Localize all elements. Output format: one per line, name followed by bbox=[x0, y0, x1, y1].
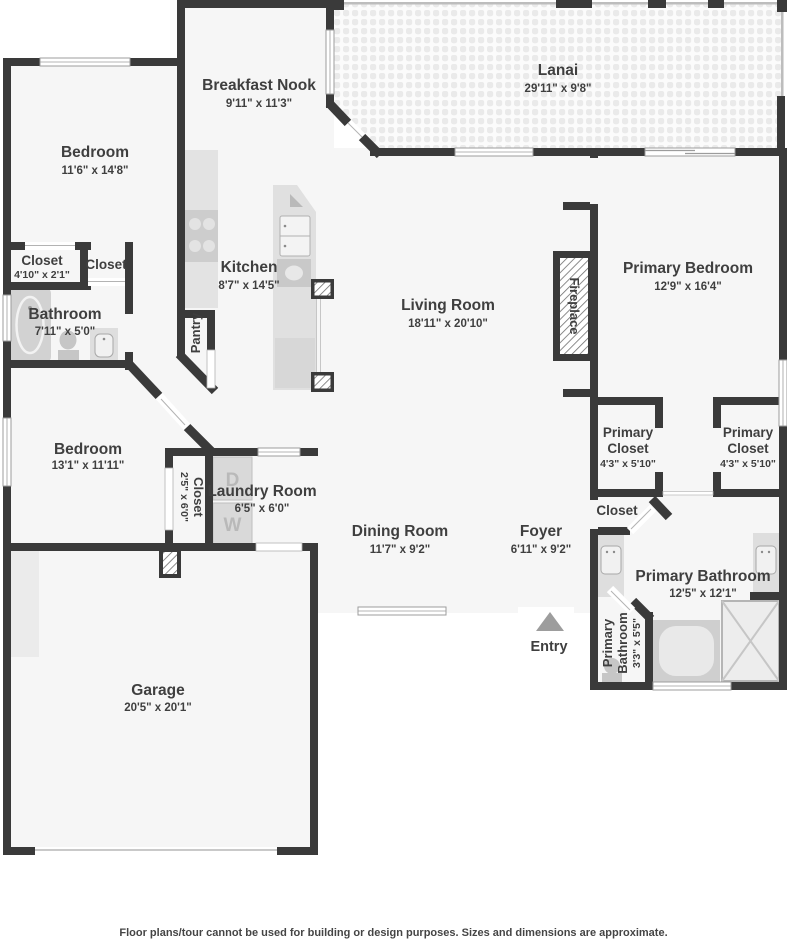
label-primary-closet-left-1: Primary bbox=[603, 425, 654, 440]
label-foyer-name: Foyer bbox=[520, 523, 562, 540]
label-hall-closet-name: Closet bbox=[596, 503, 638, 518]
kitchen-cabinet-fixture bbox=[277, 259, 311, 287]
label-closet-b-name: Closet bbox=[85, 257, 127, 272]
label-bedroom-mid-dims: 13'1" x 11'11" bbox=[52, 460, 125, 472]
label-primary-closet-right-1: Primary bbox=[723, 425, 774, 440]
label-fireplace-name: Fireplace bbox=[567, 277, 582, 334]
label-pantry-name: Pantry bbox=[188, 312, 203, 353]
label-primary-bathroom-dims: 12'5" x 12'1" bbox=[669, 588, 737, 600]
disclaimer-text: Floor plans/tour cannot be used for buil… bbox=[0, 927, 787, 939]
label-primary-closet-right-2: Closet bbox=[727, 441, 769, 456]
label-foyer-dims: 6'11" x 9'2" bbox=[511, 544, 572, 556]
label-primary-wc-dims: 3'3" x 5'5" bbox=[631, 618, 643, 668]
label-lanai-name: Lanai bbox=[538, 62, 578, 79]
label-closet-mid-dims: 2'5" x 6'0" bbox=[178, 472, 190, 522]
primary-vanity-left bbox=[598, 533, 624, 597]
slider-window bbox=[645, 148, 735, 156]
label-breakfast-nook-dims: 9'11" x 11'3" bbox=[226, 98, 292, 110]
label-bedroom-top-name: Bedroom bbox=[61, 144, 129, 161]
label-primary-closet-left-2: Closet bbox=[607, 441, 649, 456]
label-bedroom-mid-name: Bedroom bbox=[54, 441, 122, 458]
stove-fixture bbox=[185, 210, 218, 262]
label-laundry-dims: 6'5" x 6'0" bbox=[235, 503, 290, 515]
label-closet-mid-name: Closet bbox=[191, 477, 206, 517]
shower-fixture bbox=[722, 601, 779, 681]
label-garage-name: Garage bbox=[131, 682, 185, 699]
label-primary-bedroom-dims: 12'9" x 16'4" bbox=[654, 281, 722, 293]
primary-vanity-right bbox=[753, 533, 779, 597]
label-closet-a-dims: 4'10" x 2'1" bbox=[14, 269, 70, 281]
label-washer: W bbox=[224, 515, 242, 536]
bathtub-fixture bbox=[9, 288, 51, 362]
label-entry: Entry bbox=[530, 639, 567, 655]
floor-plan-page: Breakfast Nook 9'11" x 11'3" Lanai 29'11… bbox=[0, 0, 787, 942]
label-primary-bathroom-name: Primary Bathroom bbox=[635, 568, 770, 585]
label-living-room-dims: 18'11" x 20'10" bbox=[408, 318, 488, 330]
label-primary-wc-2: Bathroom bbox=[615, 612, 630, 673]
label-bathroom-dims: 7'11" x 5'0" bbox=[35, 326, 96, 338]
label-living-room-name: Living Room bbox=[401, 297, 495, 314]
primary-tub-fixture bbox=[653, 620, 720, 682]
label-dining-dims: 11'7" x 9'2" bbox=[370, 544, 431, 556]
label-kitchen-dims: 8'7" x 14'5" bbox=[218, 280, 279, 292]
label-breakfast-nook-name: Breakfast Nook bbox=[202, 77, 316, 94]
label-primary-closet-right-dims: 4'3" x 5'10" bbox=[720, 458, 776, 470]
label-primary-bedroom-name: Primary Bedroom bbox=[623, 260, 753, 277]
floor-plan-svg: Breakfast Nook 9'11" x 11'3" Lanai 29'11… bbox=[0, 0, 787, 942]
label-laundry-name: Laundry Room bbox=[207, 483, 316, 500]
label-bedroom-top-dims: 11'6" x 14'8" bbox=[62, 165, 129, 177]
garage-floor-strip bbox=[11, 551, 39, 657]
label-dining-name: Dining Room bbox=[352, 523, 448, 540]
kitchen-sink-fixture bbox=[280, 216, 310, 256]
label-bathroom-name: Bathroom bbox=[28, 306, 101, 323]
label-closet-a-name: Closet bbox=[21, 253, 63, 268]
label-lanai-dims: 29'11" x 9'8" bbox=[525, 83, 592, 95]
label-dryer: D bbox=[226, 470, 240, 491]
label-primary-closet-left-dims: 4'3" x 5'10" bbox=[600, 458, 656, 470]
label-garage-dims: 20'5" x 20'1" bbox=[124, 702, 192, 714]
refrigerator-fixture bbox=[275, 338, 315, 388]
label-primary-wc-1: Primary bbox=[600, 618, 615, 667]
label-kitchen-name: Kitchen bbox=[221, 259, 278, 276]
